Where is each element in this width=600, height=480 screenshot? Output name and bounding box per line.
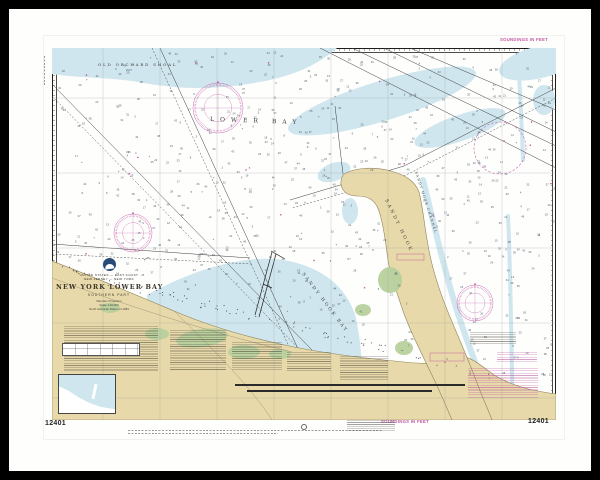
svg-text:40: 40 xyxy=(278,151,281,155)
svg-text:26: 26 xyxy=(278,269,281,273)
svg-text:12: 12 xyxy=(167,221,170,225)
svg-text:32: 32 xyxy=(111,251,114,255)
svg-text:15: 15 xyxy=(226,95,229,99)
svg-text:24: 24 xyxy=(107,237,110,241)
svg-text:45: 45 xyxy=(333,183,336,187)
svg-text:38: 38 xyxy=(360,252,363,256)
svg-text:22: 22 xyxy=(390,137,393,141)
svg-text:40: 40 xyxy=(308,185,311,189)
svg-text:33: 33 xyxy=(248,282,251,286)
svg-text:39: 39 xyxy=(452,229,455,233)
svg-text:3: 3 xyxy=(272,187,274,191)
svg-text:13: 13 xyxy=(547,86,550,90)
svg-text:42: 42 xyxy=(135,135,138,139)
caution-circles xyxy=(474,122,526,174)
svg-text:45: 45 xyxy=(180,147,183,151)
svg-text:35: 35 xyxy=(467,92,470,96)
svg-text:20: 20 xyxy=(224,51,227,55)
svg-text:14: 14 xyxy=(501,255,504,259)
svg-text:39: 39 xyxy=(99,252,102,256)
svg-text:14: 14 xyxy=(258,108,261,112)
svg-text:43: 43 xyxy=(123,63,126,67)
svg-text:38: 38 xyxy=(116,105,119,109)
title-region: NEW JERSEY — NEW YORK xyxy=(56,277,162,281)
inset-sandy-hook xyxy=(91,384,97,399)
svg-text:25: 25 xyxy=(304,79,307,83)
svg-text:14: 14 xyxy=(545,121,548,125)
svg-text:31: 31 xyxy=(126,113,129,117)
svg-text:42: 42 xyxy=(83,182,86,186)
svg-text:46: 46 xyxy=(521,215,524,219)
notes-block xyxy=(170,330,226,370)
gull-icon xyxy=(104,263,114,269)
svg-text:30: 30 xyxy=(411,337,414,341)
svg-text:11: 11 xyxy=(504,215,507,219)
svg-text:+: + xyxy=(551,330,553,334)
svg-text:+: + xyxy=(516,140,518,144)
svg-text:39: 39 xyxy=(232,136,235,140)
svg-text:+: + xyxy=(81,160,83,164)
svg-text:45: 45 xyxy=(122,168,125,172)
place-label: OLD ORCHARD SHOAL xyxy=(98,62,177,67)
svg-text:8: 8 xyxy=(82,191,84,195)
svg-text:41: 41 xyxy=(96,74,99,78)
svg-text:29: 29 xyxy=(370,168,373,172)
svg-text:5: 5 xyxy=(377,135,379,139)
svg-text:38: 38 xyxy=(137,97,140,101)
svg-text:25: 25 xyxy=(225,211,228,215)
svg-text:28: 28 xyxy=(353,269,356,273)
svg-text:25: 25 xyxy=(381,160,384,164)
credit-microtext xyxy=(128,430,383,431)
chart-title: NEW YORK LOWER BAY xyxy=(56,283,162,292)
svg-text:34: 34 xyxy=(265,140,268,144)
svg-text:13: 13 xyxy=(299,130,302,134)
svg-text:32: 32 xyxy=(223,181,226,185)
svg-text:17: 17 xyxy=(155,122,158,126)
svg-text:32: 32 xyxy=(353,164,356,168)
svg-text:45: 45 xyxy=(166,202,169,206)
svg-text:31: 31 xyxy=(165,248,168,252)
svg-text:17: 17 xyxy=(143,206,146,210)
notes-block xyxy=(232,342,282,370)
svg-text:38: 38 xyxy=(140,80,143,84)
svg-text:31: 31 xyxy=(321,159,324,163)
svg-text:24: 24 xyxy=(56,250,59,254)
svg-text:26: 26 xyxy=(550,342,553,346)
svg-text:31: 31 xyxy=(120,118,123,122)
svg-text:36: 36 xyxy=(61,106,64,110)
svg-text:14: 14 xyxy=(217,209,220,213)
svg-text:36: 36 xyxy=(363,147,366,151)
svg-text:10: 10 xyxy=(430,113,433,117)
svg-text:9: 9 xyxy=(99,181,101,185)
svg-text:44: 44 xyxy=(423,132,426,136)
svg-text:18: 18 xyxy=(62,69,65,73)
svg-text:29: 29 xyxy=(212,147,215,151)
svg-text:12: 12 xyxy=(242,212,245,216)
svg-text:37: 37 xyxy=(544,336,547,340)
svg-text:15: 15 xyxy=(223,200,226,204)
svg-text:5: 5 xyxy=(191,190,193,194)
svg-text:3: 3 xyxy=(134,115,136,119)
datum-line: North American Datum of 1983 xyxy=(56,307,162,311)
svg-text:22: 22 xyxy=(201,108,204,112)
svg-text:23: 23 xyxy=(427,141,430,145)
notes-block xyxy=(470,332,516,346)
svg-text:5: 5 xyxy=(246,216,248,220)
svg-text:2: 2 xyxy=(355,244,357,248)
svg-text:40: 40 xyxy=(438,219,441,223)
svg-text:30: 30 xyxy=(431,55,434,59)
svg-text:23: 23 xyxy=(476,221,479,225)
svg-text:40: 40 xyxy=(451,118,454,122)
svg-text:5: 5 xyxy=(241,175,243,179)
svg-text:30: 30 xyxy=(384,120,387,124)
svg-text:3: 3 xyxy=(275,81,277,85)
svg-text:2: 2 xyxy=(447,255,449,259)
notes-block xyxy=(340,356,388,380)
svg-text:5: 5 xyxy=(196,134,198,138)
compass-rose-icon xyxy=(193,81,243,134)
svg-text:11: 11 xyxy=(187,206,190,210)
svg-text:37: 37 xyxy=(274,111,277,115)
svg-text:21: 21 xyxy=(227,109,230,113)
svg-text:19: 19 xyxy=(509,86,512,90)
svg-text:17: 17 xyxy=(178,152,181,156)
svg-text:13: 13 xyxy=(444,211,447,215)
svg-text:15: 15 xyxy=(332,117,335,121)
svg-text:23: 23 xyxy=(291,178,294,182)
svg-text:5: 5 xyxy=(310,75,312,79)
svg-text:40: 40 xyxy=(243,240,246,244)
svg-text:37: 37 xyxy=(338,302,341,306)
svg-text:9: 9 xyxy=(193,92,195,96)
svg-text:27: 27 xyxy=(340,78,343,82)
svg-text:30: 30 xyxy=(468,179,471,183)
svg-text:26: 26 xyxy=(529,250,532,254)
svg-text:6: 6 xyxy=(378,287,380,291)
svg-text:13: 13 xyxy=(327,74,330,78)
svg-text:43: 43 xyxy=(237,170,240,174)
svg-text:42: 42 xyxy=(543,103,546,107)
svg-text:25: 25 xyxy=(131,238,134,242)
svg-text:46: 46 xyxy=(414,121,417,125)
svg-text:5: 5 xyxy=(330,259,332,263)
svg-text:40: 40 xyxy=(158,243,161,247)
svg-text:45: 45 xyxy=(372,228,375,232)
svg-text:25: 25 xyxy=(491,205,494,209)
svg-text:42: 42 xyxy=(219,259,222,263)
svg-text:18: 18 xyxy=(292,249,295,253)
svg-text:37: 37 xyxy=(477,349,480,353)
svg-text:27: 27 xyxy=(449,276,452,280)
svg-text:41: 41 xyxy=(506,278,509,282)
svg-text:18: 18 xyxy=(82,121,85,125)
svg-text:+: + xyxy=(86,77,88,81)
svg-text:+: + xyxy=(242,127,244,131)
svg-text:+: + xyxy=(301,231,303,235)
svg-text:16: 16 xyxy=(128,150,131,154)
svg-text:+: + xyxy=(335,243,337,247)
svg-text:34: 34 xyxy=(184,280,187,284)
scale-bar-miles xyxy=(247,390,432,392)
svg-text:33: 33 xyxy=(441,197,444,201)
noaa-logo-icon xyxy=(103,258,116,271)
svg-text:+: + xyxy=(318,114,320,118)
svg-text:33: 33 xyxy=(177,60,180,64)
svg-text:12: 12 xyxy=(226,245,229,249)
chart-number-left: 12401 xyxy=(45,420,66,427)
svg-text:28: 28 xyxy=(132,192,135,196)
svg-text:34: 34 xyxy=(153,204,156,208)
svg-text:29: 29 xyxy=(79,83,82,87)
svg-text:27: 27 xyxy=(442,166,445,170)
svg-text:35: 35 xyxy=(498,246,501,250)
svg-text:36: 36 xyxy=(472,113,475,117)
svg-text:14: 14 xyxy=(271,142,274,146)
svg-text:26: 26 xyxy=(442,97,445,101)
svg-text:16: 16 xyxy=(245,174,248,178)
svg-text:40: 40 xyxy=(506,192,509,196)
svg-text:36: 36 xyxy=(469,240,472,244)
svg-text:28: 28 xyxy=(348,58,351,62)
svg-text:37: 37 xyxy=(546,182,549,186)
svg-text:34: 34 xyxy=(390,92,393,96)
notes-block-magenta xyxy=(497,352,537,362)
svg-text:15: 15 xyxy=(324,157,327,161)
svg-text:23: 23 xyxy=(295,201,298,205)
svg-text:17: 17 xyxy=(527,207,530,211)
svg-text:9: 9 xyxy=(436,224,438,228)
edition-microtext xyxy=(44,56,45,86)
svg-text:45: 45 xyxy=(84,241,87,245)
svg-text:26: 26 xyxy=(404,338,407,342)
chart-subtitle: SOUTHERN PART xyxy=(56,293,162,298)
svg-text:40: 40 xyxy=(435,188,438,192)
svg-text:26: 26 xyxy=(267,153,270,157)
svg-text:32: 32 xyxy=(469,291,472,295)
svg-text:4: 4 xyxy=(463,202,465,206)
svg-text:24: 24 xyxy=(233,112,236,116)
svg-text:35: 35 xyxy=(517,284,520,288)
svg-text:37: 37 xyxy=(200,263,203,267)
svg-text:34: 34 xyxy=(413,93,416,97)
svg-text:31: 31 xyxy=(308,69,311,73)
svg-text:29: 29 xyxy=(305,279,308,283)
soundings-note-top: SOUNDINGS IN FEET xyxy=(500,37,548,42)
svg-text:17: 17 xyxy=(521,104,524,108)
svg-text:29: 29 xyxy=(510,281,513,285)
svg-text:20: 20 xyxy=(292,278,295,282)
svg-text:24: 24 xyxy=(490,261,493,265)
svg-text:37: 37 xyxy=(463,272,466,276)
svg-text:38: 38 xyxy=(508,240,511,244)
svg-text:10: 10 xyxy=(477,176,480,180)
compass-rose-icon xyxy=(114,212,152,253)
svg-text:32: 32 xyxy=(187,287,190,291)
notes-block xyxy=(287,352,331,372)
svg-text:32: 32 xyxy=(58,86,61,90)
svg-text:36: 36 xyxy=(345,244,348,248)
svg-text:45: 45 xyxy=(467,198,470,202)
corrections-microtext xyxy=(347,420,395,431)
svg-text:43: 43 xyxy=(202,252,205,256)
svg-text:7: 7 xyxy=(415,127,417,131)
svg-text:43: 43 xyxy=(507,268,510,272)
svg-text:19: 19 xyxy=(313,194,316,198)
svg-text:36: 36 xyxy=(356,81,359,85)
svg-text:19: 19 xyxy=(269,255,272,259)
svg-text:18: 18 xyxy=(77,124,80,128)
svg-text:7: 7 xyxy=(93,236,95,240)
svg-text:24: 24 xyxy=(409,330,412,334)
svg-text:24: 24 xyxy=(359,245,362,249)
svg-text:43: 43 xyxy=(355,231,358,235)
svg-text:23: 23 xyxy=(460,285,463,289)
svg-text:31: 31 xyxy=(377,221,380,225)
svg-text:27: 27 xyxy=(188,107,191,111)
svg-text:10: 10 xyxy=(466,126,469,130)
svg-text:19: 19 xyxy=(170,144,173,148)
svg-text:25: 25 xyxy=(361,123,364,127)
svg-text:17: 17 xyxy=(177,179,180,183)
svg-text:45: 45 xyxy=(425,106,428,110)
svg-text:32: 32 xyxy=(296,234,299,238)
svg-text:7: 7 xyxy=(349,257,351,261)
svg-text:31: 31 xyxy=(298,271,301,275)
svg-text:20: 20 xyxy=(553,219,556,223)
svg-text:47: 47 xyxy=(415,55,418,59)
svg-text:12: 12 xyxy=(346,85,349,89)
svg-text:10: 10 xyxy=(197,256,200,260)
svg-text:37: 37 xyxy=(386,82,389,86)
svg-text:46: 46 xyxy=(299,214,302,218)
svg-text:6: 6 xyxy=(253,125,255,129)
svg-text:21: 21 xyxy=(77,234,80,238)
credit-microtext xyxy=(128,433,278,434)
svg-text:44: 44 xyxy=(488,148,491,152)
svg-text:10: 10 xyxy=(290,101,293,105)
svg-text:29: 29 xyxy=(548,101,551,105)
svg-text:27: 27 xyxy=(152,226,155,230)
svg-text:29: 29 xyxy=(467,163,470,167)
svg-text:34: 34 xyxy=(237,113,240,117)
svg-text:5: 5 xyxy=(423,153,425,157)
svg-text:45: 45 xyxy=(268,63,271,67)
svg-text:38: 38 xyxy=(157,134,160,138)
svg-text:25: 25 xyxy=(519,331,522,335)
svg-text:32: 32 xyxy=(254,115,257,119)
svg-text:46: 46 xyxy=(168,52,171,56)
svg-text:32: 32 xyxy=(211,55,214,59)
svg-text:28: 28 xyxy=(170,190,173,194)
svg-text:18: 18 xyxy=(264,135,267,139)
svg-text:46: 46 xyxy=(279,304,282,308)
svg-text:14: 14 xyxy=(483,357,486,361)
svg-text:4: 4 xyxy=(462,249,464,253)
svg-text:29: 29 xyxy=(409,93,412,97)
svg-text:30: 30 xyxy=(249,141,252,145)
svg-text:35: 35 xyxy=(467,252,470,256)
svg-text:44: 44 xyxy=(358,237,361,241)
svg-text:14: 14 xyxy=(121,175,124,179)
svg-text:41: 41 xyxy=(167,238,170,242)
svg-text:10: 10 xyxy=(216,181,219,185)
svg-text:11: 11 xyxy=(467,195,470,199)
svg-text:17: 17 xyxy=(549,373,552,377)
inset-land xyxy=(59,375,115,413)
svg-text:21: 21 xyxy=(331,102,334,106)
svg-text:9: 9 xyxy=(142,221,144,225)
svg-text:36: 36 xyxy=(327,56,330,60)
svg-text:38: 38 xyxy=(544,352,547,356)
svg-text:21: 21 xyxy=(503,94,506,98)
svg-text:39: 39 xyxy=(513,251,516,255)
svg-text:5: 5 xyxy=(106,191,108,195)
svg-text:33: 33 xyxy=(207,128,210,132)
svg-text:44: 44 xyxy=(333,286,336,290)
svg-text:46: 46 xyxy=(272,176,275,180)
svg-text:43: 43 xyxy=(227,162,230,166)
svg-text:42: 42 xyxy=(116,193,119,197)
svg-text:27: 27 xyxy=(242,91,245,95)
svg-text:39: 39 xyxy=(326,210,329,214)
svg-text:13: 13 xyxy=(552,186,555,190)
svg-text:12: 12 xyxy=(299,237,302,241)
svg-text:30: 30 xyxy=(463,57,466,61)
svg-text:5: 5 xyxy=(75,240,77,244)
svg-text:4: 4 xyxy=(419,61,421,65)
svg-text:33: 33 xyxy=(249,69,252,73)
svg-text:2: 2 xyxy=(419,67,421,71)
svg-text:21: 21 xyxy=(472,136,475,140)
svg-text:6: 6 xyxy=(304,201,306,205)
svg-text:19: 19 xyxy=(130,173,133,177)
svg-text:4: 4 xyxy=(520,190,522,194)
svg-text:24: 24 xyxy=(334,192,337,196)
svg-text:22: 22 xyxy=(348,223,351,227)
svg-text:15: 15 xyxy=(516,231,519,235)
svg-text:44: 44 xyxy=(473,320,476,324)
framed-nautical-chart: OLD ORCHARD SHOALLOWER BAYSANDY HOOKSAND… xyxy=(0,0,600,480)
svg-text:17: 17 xyxy=(538,78,541,82)
svg-text:30: 30 xyxy=(332,303,335,307)
svg-text:+: + xyxy=(133,62,135,66)
svg-text:21: 21 xyxy=(273,96,276,100)
svg-text:14: 14 xyxy=(321,106,324,110)
svg-text:+: + xyxy=(213,175,215,179)
svg-text:40: 40 xyxy=(522,249,525,253)
svg-text:13: 13 xyxy=(281,257,284,261)
svg-text:45: 45 xyxy=(499,221,502,225)
svg-text:23: 23 xyxy=(360,160,363,164)
svg-text:24: 24 xyxy=(493,148,496,152)
svg-text:11: 11 xyxy=(326,106,329,110)
svg-text:20: 20 xyxy=(299,87,302,91)
svg-text:+: + xyxy=(212,237,214,241)
svg-text:15: 15 xyxy=(495,238,498,242)
svg-text:33: 33 xyxy=(505,313,508,317)
svg-text:+: + xyxy=(236,281,238,285)
svg-text:30: 30 xyxy=(273,249,276,253)
svg-text:4: 4 xyxy=(472,65,474,69)
svg-text:38: 38 xyxy=(436,174,439,178)
svg-text:45: 45 xyxy=(319,55,322,59)
svg-text:21: 21 xyxy=(390,292,393,296)
svg-text:40: 40 xyxy=(371,60,374,64)
svg-text:8: 8 xyxy=(244,187,246,191)
